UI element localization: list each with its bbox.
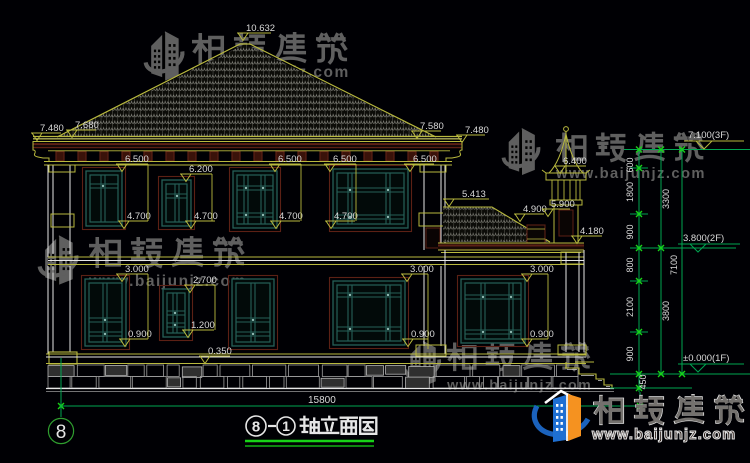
- svg-text:www.baijunjz.com: www.baijunjz.com: [591, 427, 736, 443]
- svg-text:4.180: 4.180: [580, 226, 604, 237]
- svg-text:6.500: 6.500: [333, 154, 357, 165]
- svg-text:450: 450: [638, 374, 648, 389]
- svg-text:6.500: 6.500: [125, 154, 149, 165]
- svg-text:8: 8: [56, 422, 67, 443]
- svg-text:3300: 3300: [661, 189, 671, 209]
- svg-text:3.800(2F): 3.800(2F): [683, 233, 724, 244]
- svg-text:600: 600: [625, 157, 635, 172]
- svg-text:7.100(3F): 7.100(3F): [688, 130, 729, 141]
- svg-text:0.900: 0.900: [530, 329, 554, 340]
- svg-text:0.350: 0.350: [208, 346, 232, 357]
- svg-text:4.700: 4.700: [334, 211, 358, 222]
- svg-text:1800: 1800: [625, 182, 635, 202]
- svg-text:3800: 3800: [661, 301, 671, 321]
- svg-text:6.200: 6.200: [189, 164, 213, 175]
- svg-text:7100: 7100: [669, 255, 679, 275]
- svg-text:±0.000(1F): ±0.000(1F): [683, 353, 729, 364]
- svg-text:3.000: 3.000: [410, 264, 434, 275]
- svg-text:8: 8: [252, 419, 260, 436]
- svg-text:4.700: 4.700: [194, 211, 218, 222]
- svg-text:5.413: 5.413: [462, 189, 486, 200]
- svg-text:4.700: 4.700: [279, 211, 303, 222]
- svg-text:800: 800: [625, 257, 635, 272]
- svg-text:2100: 2100: [625, 297, 635, 317]
- svg-text:7.480: 7.480: [40, 123, 64, 134]
- svg-text:6.400: 6.400: [563, 156, 587, 167]
- svg-text:3.000: 3.000: [125, 264, 149, 275]
- svg-text:900: 900: [625, 346, 635, 361]
- svg-text:7.480: 7.480: [465, 125, 489, 136]
- svg-text:6.500: 6.500: [278, 154, 302, 165]
- svg-text:3.000: 3.000: [530, 264, 554, 275]
- svg-text:6.500: 6.500: [413, 154, 437, 165]
- svg-text:10.632: 10.632: [246, 23, 275, 34]
- svg-text:7.580: 7.580: [420, 121, 444, 132]
- svg-text:900: 900: [625, 224, 635, 239]
- svg-text:1.200: 1.200: [191, 320, 215, 331]
- svg-text:2.700: 2.700: [193, 275, 217, 286]
- svg-text:7.680: 7.680: [75, 120, 99, 131]
- svg-text:www.baijunjz.com: www.baijunjz.com: [446, 377, 592, 393]
- svg-text:5.900: 5.900: [551, 199, 575, 210]
- svg-text:15800: 15800: [308, 395, 336, 406]
- svg-text:4.700: 4.700: [127, 211, 151, 222]
- svg-text:0.900: 0.900: [411, 329, 435, 340]
- svg-text:1: 1: [282, 418, 290, 434]
